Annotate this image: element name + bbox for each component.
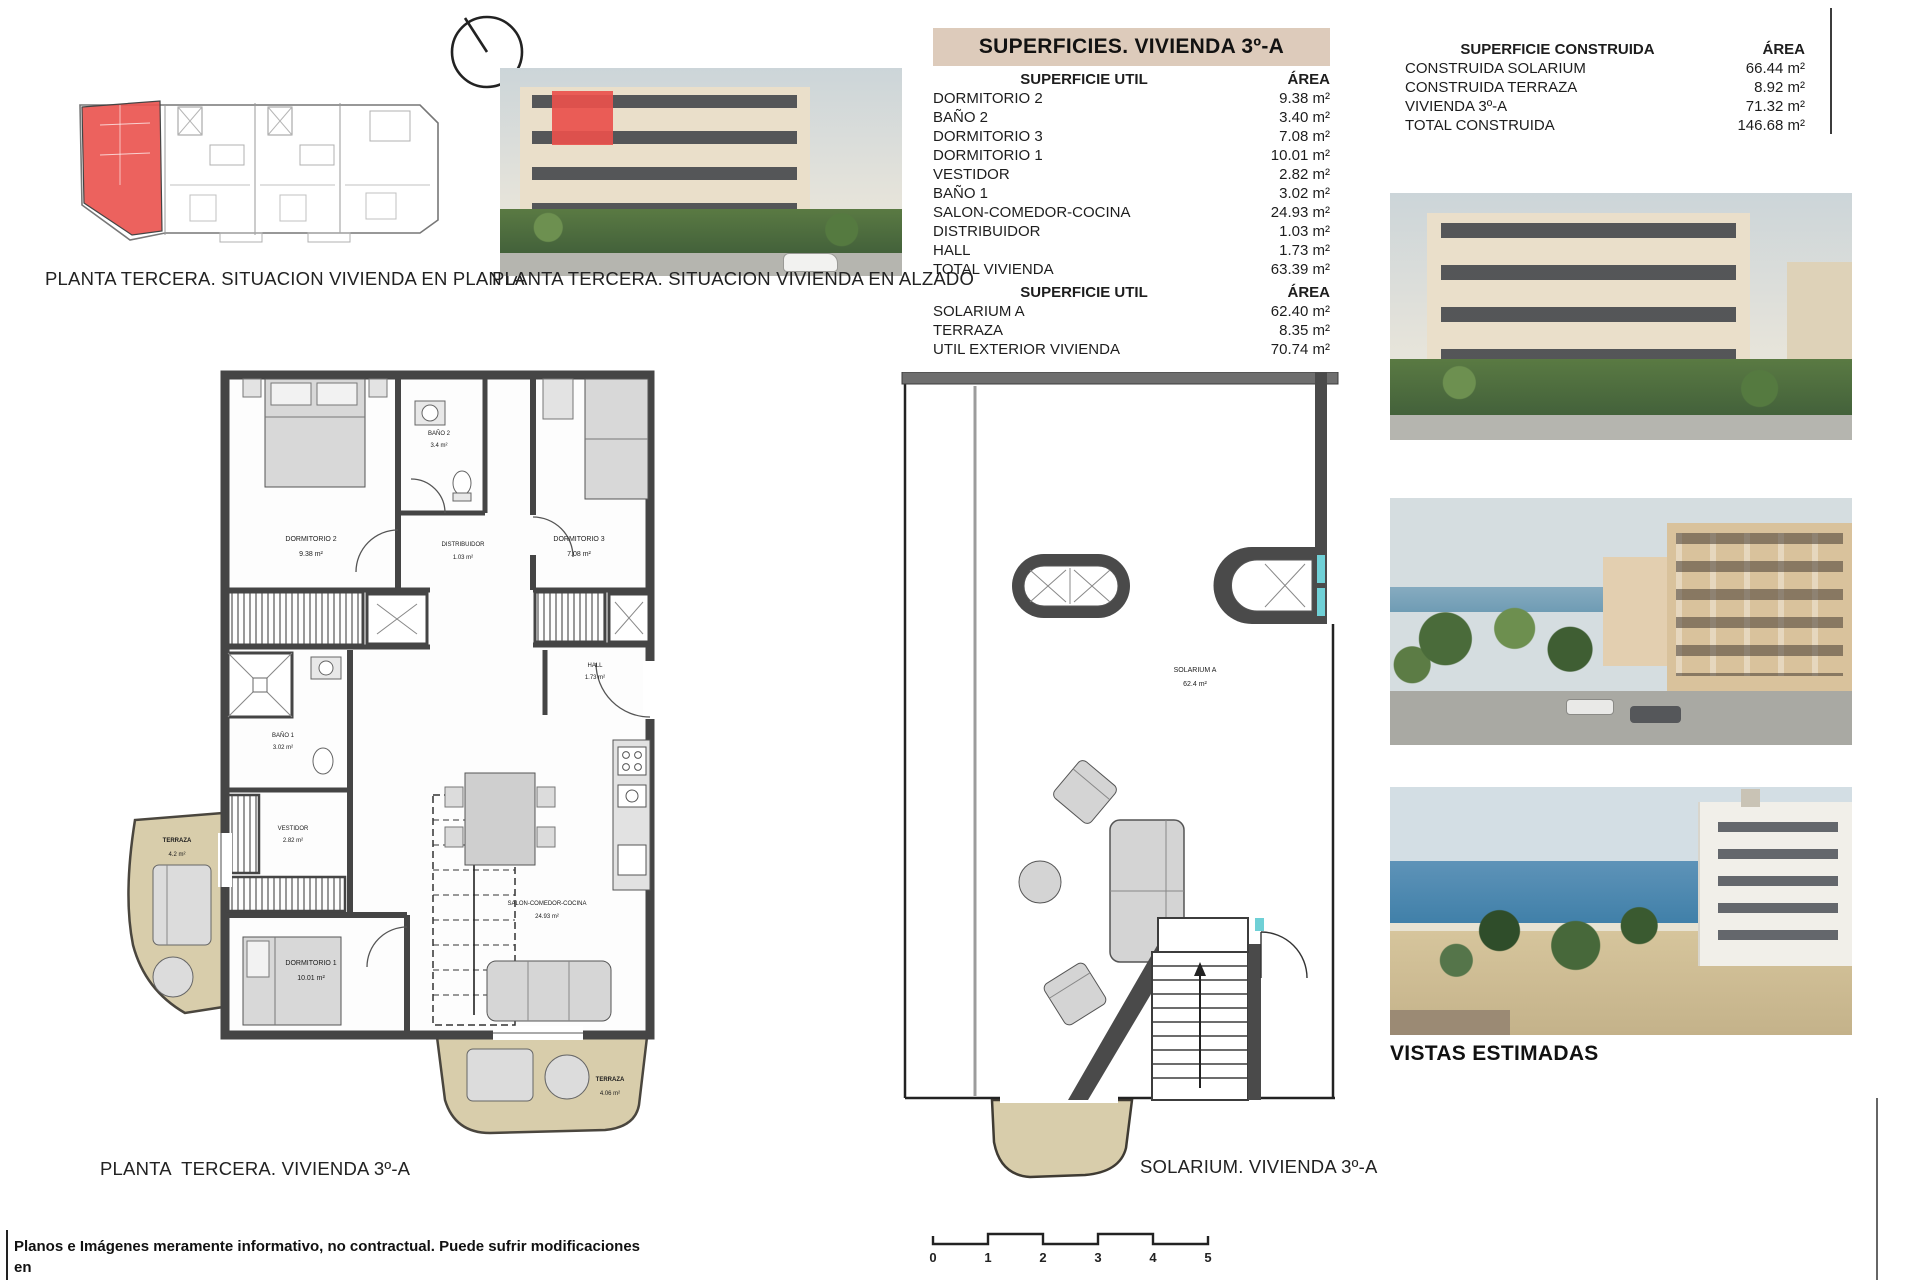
row-area: 9.38 m² xyxy=(1235,89,1330,108)
row-area: 10.01 m² xyxy=(1235,146,1330,165)
header-area: ÁREA xyxy=(1710,40,1805,59)
photo-building-render xyxy=(1390,193,1852,440)
table-row: BAÑO 23.40 m² xyxy=(933,108,1330,127)
scale-bar: 0 1 2 3 4 5 xyxy=(918,1222,1228,1272)
row-area: 66.44 m² xyxy=(1710,59,1805,78)
room-label: HALL xyxy=(587,663,603,669)
row-label: UTIL EXTERIOR VIVIENDA xyxy=(933,340,1235,359)
room-label: DISTRIBUIDOR xyxy=(441,542,485,548)
room-area: 2.82 m² xyxy=(283,838,303,844)
table-row: CONSTRUIDA TERRAZA8.92 m² xyxy=(1405,78,1805,97)
table-row: TOTAL CONSTRUIDA146.68 m² xyxy=(1405,116,1805,135)
room-area: 3.4 m² xyxy=(430,443,447,449)
car xyxy=(1566,699,1614,716)
row-area: 3.02 m² xyxy=(1235,184,1330,203)
row-label: TOTAL CONSTRUIDA xyxy=(1405,116,1710,135)
building-right-windows xyxy=(1676,533,1842,676)
room-area: 24.93 m² xyxy=(535,914,559,920)
room-label: BAÑO 2 xyxy=(428,430,451,437)
room-area: 4.2 m² xyxy=(168,852,185,858)
sofa xyxy=(487,961,611,1021)
room-area: 3.02 m² xyxy=(273,745,293,751)
building-windows xyxy=(1441,223,1737,371)
row-area: 7.08 m² xyxy=(1235,127,1330,146)
scale-tick: 2 xyxy=(1039,1250,1046,1265)
table-row: DORMITORIO 110.01 m² xyxy=(933,146,1330,165)
room-area: 1.03 m² xyxy=(453,555,473,561)
highlighted-unit-planta xyxy=(82,101,162,235)
header-superficie-util: SUPERFICIE UTIL xyxy=(933,283,1235,302)
bed-dormitorio-2 xyxy=(243,379,387,487)
table-row: SALON-COMEDOR-COCINA24.93 m² xyxy=(933,203,1330,222)
table-row: VIVIENDA 3º-A71.32 m² xyxy=(1405,97,1805,116)
row-label: TOTAL VIVIENDA xyxy=(933,260,1235,279)
sheet-edge-line xyxy=(1876,1098,1878,1280)
main-floor-plan: TERRAZA 4.2 m² TERRAZA 4.06 m² xyxy=(115,365,660,1140)
row-label: VIVIENDA 3º-A xyxy=(1405,97,1710,116)
scale-tick: 0 xyxy=(929,1250,936,1265)
side-building xyxy=(1787,262,1852,366)
photo-beach-view xyxy=(1390,787,1852,1035)
room-label: DORMITORIO 3 xyxy=(553,536,604,543)
construida-table: SUPERFICIE CONSTRUIDA ÁREA CONSTRUIDA SO… xyxy=(1405,40,1805,135)
row-area: 71.32 m² xyxy=(1710,97,1805,116)
bed-dormitorio-1 xyxy=(243,937,341,1025)
foreground-rooftop xyxy=(1390,1010,1510,1035)
room-area: 4.06 m² xyxy=(600,1091,620,1097)
table-row: HALL1.73 m² xyxy=(933,241,1330,260)
room-area: 9.38 m² xyxy=(299,551,323,558)
row-area: 2.82 m² xyxy=(1235,165,1330,184)
photo-situacion-alzado xyxy=(500,68,902,276)
road xyxy=(1390,415,1852,440)
road xyxy=(1390,691,1852,745)
table-row: DORMITORIO 37.08 m² xyxy=(933,127,1330,146)
margin-tick xyxy=(6,1230,8,1280)
row-label: SOLARIUM A xyxy=(933,302,1235,321)
row-label: BAÑO 1 xyxy=(933,184,1235,203)
vistas-label: VISTAS ESTIMADAS xyxy=(1390,1042,1599,1066)
photo-street-view xyxy=(1390,498,1852,745)
planter-left xyxy=(1012,554,1130,618)
terrace-bottom: TERRAZA 4.06 m² xyxy=(437,1037,647,1133)
row-label: CONSTRUIDA SOLARIUM xyxy=(1405,59,1710,78)
caption-floor-plan: PLANTA TERCERA. VIVIENDA 3º-A xyxy=(100,1158,500,1180)
row-label: VESTIDOR xyxy=(933,165,1235,184)
row-area: 62.40 m² xyxy=(1235,302,1330,321)
room-area: 10.01 m² xyxy=(297,975,325,982)
row-label: DORMITORIO 3 xyxy=(933,127,1235,146)
solarium-terrace-bump xyxy=(992,1100,1132,1177)
highlighted-unit-alzado xyxy=(552,91,612,145)
row-area: 8.92 m² xyxy=(1710,78,1805,97)
header-superficie-util: SUPERFICIE UTIL xyxy=(933,70,1235,89)
table-row: DISTRIBUIDOR1.03 m² xyxy=(933,222,1330,241)
kitchen-counter xyxy=(613,740,650,890)
table-header-row: SUPERFICIE UTIL ÁREA xyxy=(933,283,1330,302)
table-row: CONSTRUIDA SOLARIUM66.44 m² xyxy=(1405,59,1805,78)
room-label: SALON-COMEDOR-COCINA xyxy=(507,901,586,907)
scale-tick: 4 xyxy=(1149,1250,1157,1265)
row-label: HALL xyxy=(933,241,1235,260)
room-label: TERRAZA xyxy=(163,838,192,844)
table-header-row: SUPERFICIE CONSTRUIDA ÁREA xyxy=(1405,40,1805,59)
room-area: 7.08 m² xyxy=(567,551,591,558)
row-label: DORMITORIO 1 xyxy=(933,146,1235,165)
room-label: TERRAZA xyxy=(596,1077,625,1083)
superficies-table: SUPERFICIES. VIVIENDA 3º-A SUPERFICIE UT… xyxy=(933,28,1330,359)
row-area: 8.35 m² xyxy=(1235,321,1330,340)
vegetation xyxy=(1390,359,1852,418)
vegetation xyxy=(500,209,902,255)
solarium-plan: SOLARIUM A 62.4 m² xyxy=(900,372,1340,1184)
row-area: 146.68 m² xyxy=(1710,116,1805,135)
caption-solarium: SOLARIUM. VIVIENDA 3º-A xyxy=(1140,1156,1500,1178)
palms xyxy=(1436,891,1690,990)
table-row: SOLARIUM A62.40 m² xyxy=(933,302,1330,321)
terrace-opening xyxy=(1000,1094,1118,1103)
row-area: 70.74 m² xyxy=(1235,340,1330,359)
divider-line xyxy=(1830,8,1832,134)
row-area: 1.03 m² xyxy=(1235,222,1330,241)
car xyxy=(1630,706,1681,723)
scale-tick: 3 xyxy=(1094,1250,1101,1265)
plan-sheet: PLANTA TERCERA. SITUACION VIVIENDA EN PL… xyxy=(0,0,1920,1280)
row-label: CONSTRUIDA TERRAZA xyxy=(1405,78,1710,97)
room-label: SOLARIUM A xyxy=(1174,667,1217,674)
disclaimer: Planos e Imágenes meramente informativo,… xyxy=(14,1236,654,1280)
row-area: 3.40 m² xyxy=(1235,108,1330,127)
superficies-table-title: SUPERFICIES. VIVIENDA 3º-A xyxy=(933,28,1330,66)
caption-situacion-planta: PLANTA TERCERA. SITUACION VIVIENDA EN PL… xyxy=(45,268,470,290)
header-area: ÁREA xyxy=(1235,283,1330,302)
room-label: DORMITORIO 1 xyxy=(285,960,336,967)
caption-situacion-alzado: PLANTA TERCERA. SITUACION VIVIENDA EN AL… xyxy=(492,268,912,290)
planter-right xyxy=(1214,547,1328,624)
row-area: 63.39 m² xyxy=(1235,260,1330,279)
table-header-row: SUPERFICIE UTIL ÁREA xyxy=(933,70,1330,89)
scale-tick: 1 xyxy=(984,1250,991,1265)
table-row: BAÑO 13.02 m² xyxy=(933,184,1330,203)
room-label: DORMITORIO 2 xyxy=(285,536,336,543)
scale-tick: 5 xyxy=(1204,1250,1211,1265)
key-plan-planta xyxy=(70,85,448,257)
room-label: VESTIDOR xyxy=(278,826,309,832)
table-row: VESTIDOR2.82 m² xyxy=(933,165,1330,184)
white-building-windows xyxy=(1718,822,1838,946)
trees xyxy=(1390,592,1667,696)
table-row: DORMITORIO 29.38 m² xyxy=(933,89,1330,108)
header-area: ÁREA xyxy=(1235,70,1330,89)
room-area: 62.4 m² xyxy=(1183,681,1207,688)
row-label: DISTRIBUIDOR xyxy=(933,222,1235,241)
header-superficie-construida: SUPERFICIE CONSTRUIDA xyxy=(1405,40,1710,59)
solarium-stairs xyxy=(1068,918,1307,1100)
row-label: DORMITORIO 2 xyxy=(933,89,1235,108)
terrace-left: TERRAZA 4.2 m² xyxy=(128,813,223,1013)
table-row: UTIL EXTERIOR VIVIENDA70.74 m² xyxy=(933,340,1330,359)
row-label: TERRAZA xyxy=(933,321,1235,340)
row-label: SALON-COMEDOR-COCINA xyxy=(933,203,1235,222)
parapet xyxy=(905,384,1335,1098)
table-row: TERRAZA8.35 m² xyxy=(933,321,1330,340)
disclaimer-line-1: Planos e Imágenes meramente informativo,… xyxy=(14,1236,654,1278)
table-row: TOTAL VIVIENDA63.39 m² xyxy=(933,260,1330,279)
right-wall xyxy=(1315,372,1327,550)
top-wall xyxy=(902,372,1338,384)
row-area: 24.93 m² xyxy=(1235,203,1330,222)
room-label: BAÑO 1 xyxy=(272,732,295,739)
chimney xyxy=(1741,789,1759,806)
room-area: 1.73 m² xyxy=(585,675,605,681)
row-area: 1.73 m² xyxy=(1235,241,1330,260)
row-label: BAÑO 2 xyxy=(933,108,1235,127)
